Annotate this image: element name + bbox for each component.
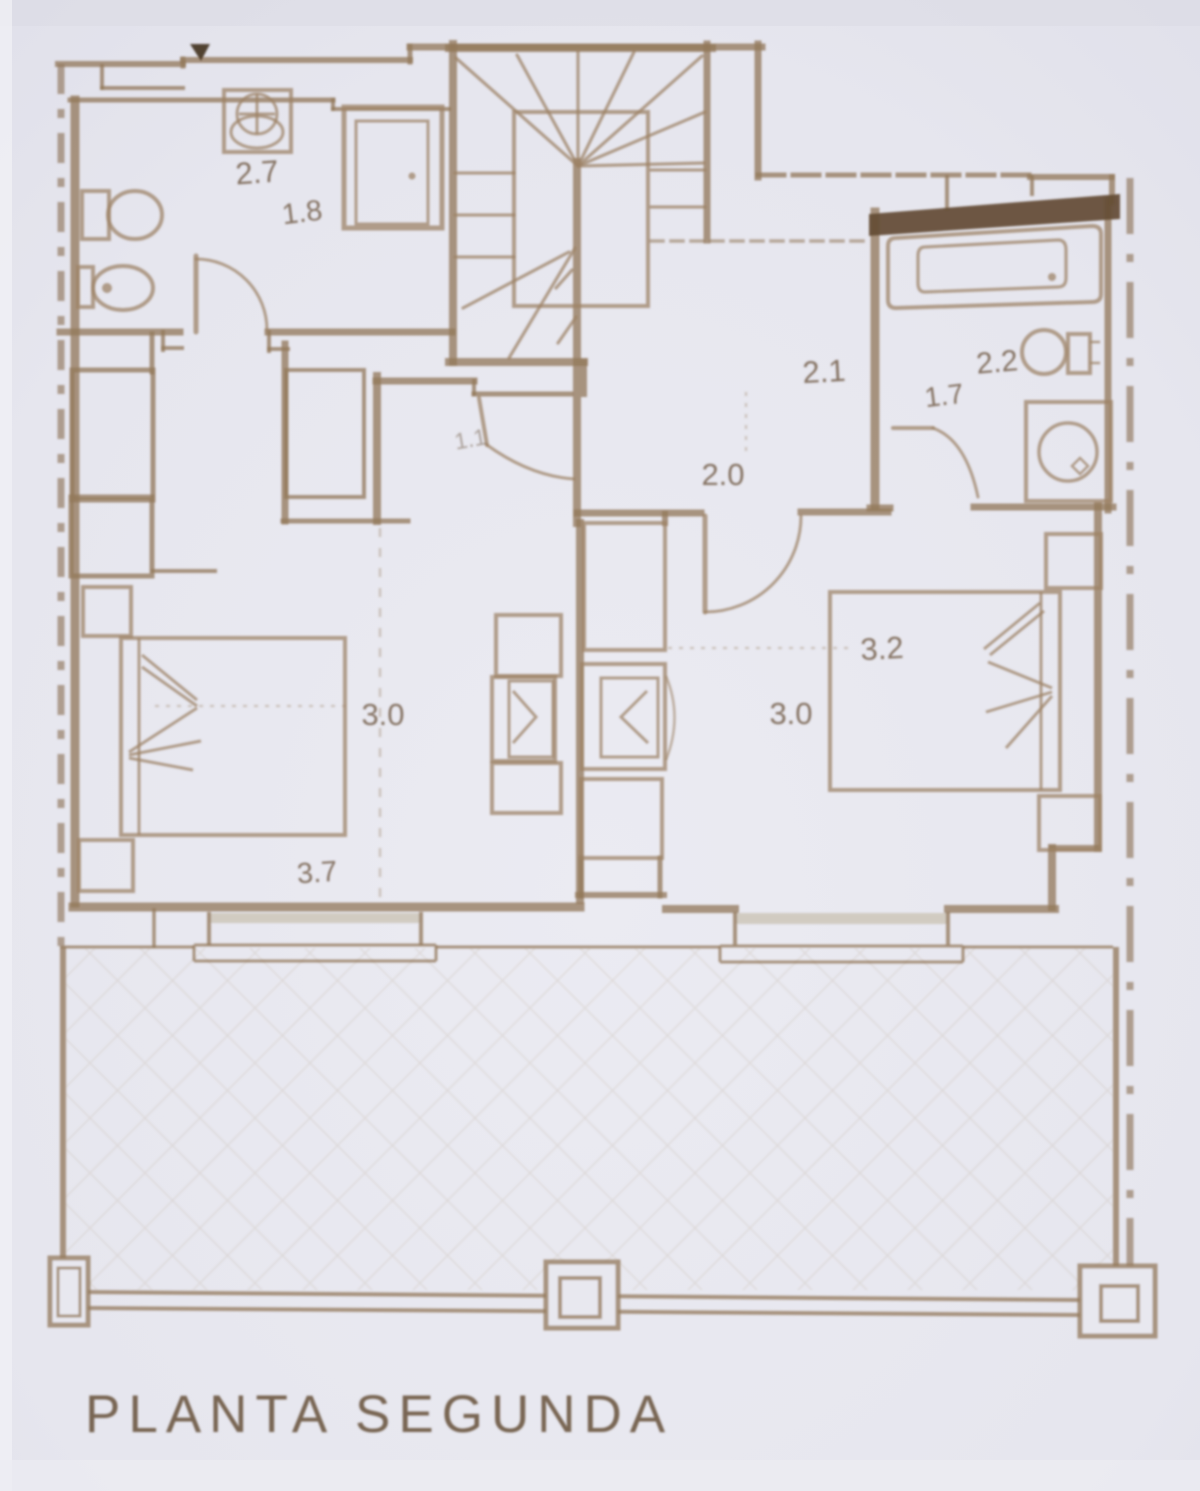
svg-text:1.8: 1.8 xyxy=(280,195,324,232)
svg-text:2.2: 2.2 xyxy=(975,344,1019,381)
svg-text:3.0: 3.0 xyxy=(769,696,812,731)
svg-text:3.7: 3.7 xyxy=(296,856,338,891)
svg-text:2.1: 2.1 xyxy=(802,353,847,390)
svg-text:3.0: 3.0 xyxy=(361,697,404,732)
svg-text:2.7: 2.7 xyxy=(234,154,279,192)
svg-text:1.1: 1.1 xyxy=(452,423,488,454)
svg-text:1.7: 1.7 xyxy=(923,378,965,414)
svg-text:2.0: 2.0 xyxy=(701,457,744,492)
svg-text:PLANTA SEGUNDA: PLANTA SEGUNDA xyxy=(85,1385,673,1444)
svg-text:3.2: 3.2 xyxy=(860,630,905,667)
